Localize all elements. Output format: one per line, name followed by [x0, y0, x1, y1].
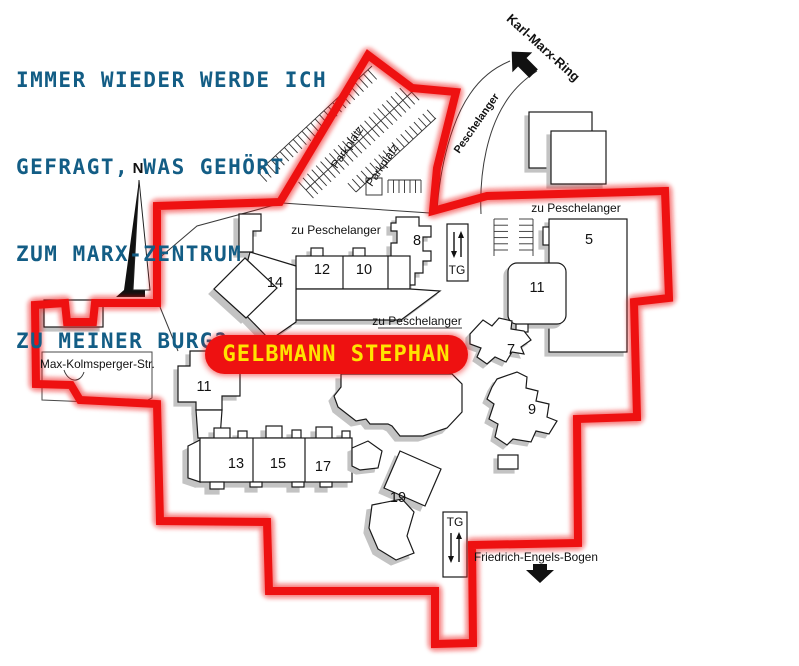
svg-text:5: 5	[585, 232, 593, 248]
garage-entry-top: TG	[447, 224, 468, 281]
site-plan: IMMER WIEDER WERDE ICH GEFRAGT, WAS GEHÖ…	[0, 0, 799, 666]
building-connector-17-19	[348, 441, 382, 474]
svg-text:15: 15	[270, 456, 286, 472]
building-9: 9	[483, 372, 557, 473]
friedrich-engels-bogen-label: Friedrich-Engels-Bogen	[474, 550, 598, 564]
owner-name: GELBMANN STEPHAN	[223, 342, 451, 367]
owner-banner: GELBMANN STEPHAN	[205, 335, 468, 374]
question-line-1: IMMER WIEDER WERDE ICH	[16, 66, 327, 95]
svg-text:TG: TG	[447, 515, 464, 529]
parking-ladder-west	[494, 219, 508, 256]
zu-peschelanger-east-label: zu Peschelanger	[531, 201, 620, 215]
svg-text:19: 19	[390, 490, 406, 506]
parking-ladder-east	[519, 219, 533, 256]
svg-text:9: 9	[528, 402, 536, 418]
svg-text:TG: TG	[449, 263, 466, 277]
svg-text:10: 10	[356, 262, 372, 278]
parkplatz-label-1: Parkplatz	[329, 124, 366, 171]
svg-text:11: 11	[529, 280, 544, 296]
building-unnumbered-2	[547, 131, 606, 188]
building-11-east: 11	[504, 263, 566, 336]
parking-comb-south	[388, 180, 421, 193]
svg-text:7: 7	[507, 342, 515, 358]
karl-marx-ring-label: Karl-Marx-Ring	[504, 11, 583, 85]
zu-peschelanger-mid-label: zu Peschelanger	[372, 314, 461, 328]
question-line-3: ZUM MARX-ZENTRUM	[16, 240, 327, 269]
svg-text:8: 8	[413, 233, 421, 249]
question-line-2: GEFRAGT, WAS GEHÖRT	[16, 153, 327, 182]
friedrich-engels-arrow-icon	[526, 564, 554, 583]
svg-text:17: 17	[315, 459, 331, 475]
garage-entry-bottom: TG	[443, 512, 467, 577]
parkplatz-label-2: Parkplatz	[364, 142, 401, 189]
svg-text:13: 13	[228, 456, 244, 472]
